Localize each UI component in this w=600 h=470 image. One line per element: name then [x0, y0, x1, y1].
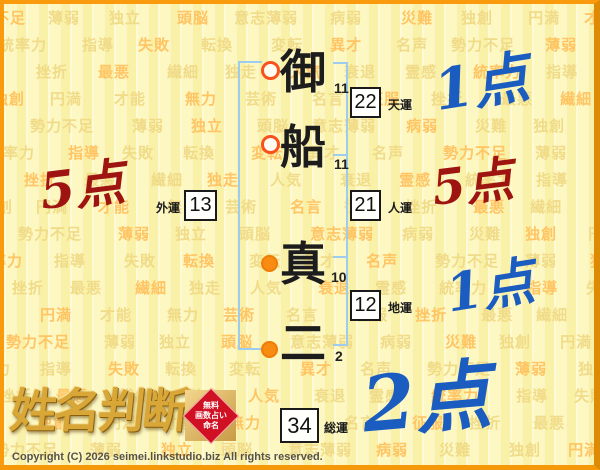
chi-un-score: 1点	[442, 255, 537, 320]
gai-un-value-box: 13	[184, 190, 217, 221]
bracket-tick	[333, 256, 348, 258]
jin-un-value-box: 21	[350, 190, 381, 221]
name-character-2: 船	[272, 124, 334, 170]
outer-fortune-bracket	[238, 61, 262, 350]
seal-line-3: 命名	[195, 421, 227, 431]
chi-un-label: 地運	[388, 299, 412, 316]
site-logo: 姓名判断	[8, 388, 189, 435]
sou-un-value-box: 34	[280, 408, 319, 443]
seimei-handan-result: 勢力不足薄弱独立頭脳意志薄弱病弱災難独創円満才能統率力指導失敗転換変転異才名声勢…	[0, 0, 600, 470]
seal-line-2: 画数占い	[195, 411, 227, 421]
stroke-count-3: 10	[331, 269, 347, 285]
chi-un-value-box: 12	[350, 290, 381, 321]
copyright-text: Copyright (C) 2026 seimei.linkstudio.biz…	[12, 451, 323, 463]
name-character-4: 二	[272, 320, 334, 366]
name-character-1: 御	[272, 49, 334, 95]
free-naming-seal-icon: 無料 画数占い 命名	[185, 390, 236, 441]
gai-un-label: 外運	[156, 199, 180, 216]
ten-un-score: 1点	[430, 49, 533, 119]
seal-diamond: 無料 画数占い 命名	[182, 387, 239, 444]
seal-text: 無料 画数占い 命名	[195, 401, 227, 431]
ten-un-label: 天運	[388, 96, 412, 113]
sou-un-label: 総運	[324, 419, 348, 436]
jin-un-score: 5点	[429, 155, 516, 213]
jin-un-label: 人運	[388, 199, 412, 216]
fortune-divider-line	[346, 62, 348, 346]
stroke-count-2: 11	[334, 156, 349, 172]
seal-line-1: 無料	[195, 401, 227, 411]
name-character-3: 真	[272, 241, 334, 287]
bracket-tick	[333, 344, 348, 346]
bracket-tick	[333, 62, 348, 64]
ten-un-value-box: 22	[350, 87, 381, 118]
stroke-count-1: 11	[334, 80, 349, 96]
stroke-count-4: 2	[335, 348, 343, 364]
gai-un-score: 5点	[37, 157, 127, 217]
sou-un-score: 2点	[359, 357, 494, 444]
